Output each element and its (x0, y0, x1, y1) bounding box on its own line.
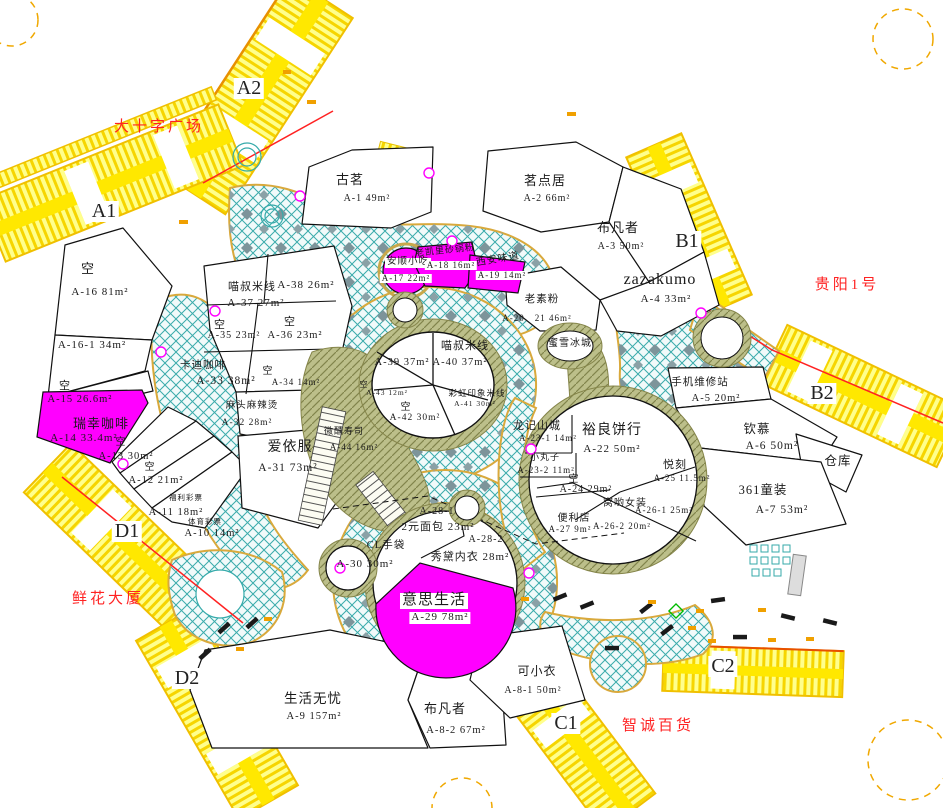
unit-name: 手机维修站 (671, 377, 729, 388)
unit-code: A-39 37m² (374, 357, 429, 368)
unit-code: A-26-2 20m² (593, 522, 651, 531)
unit-code: A-38 26m² (277, 280, 334, 292)
unit-name: 蜜雪冰城 (548, 339, 592, 350)
unit-code: A-7 53m² (756, 504, 809, 516)
unit-code: 2元面包 23m² (401, 522, 474, 534)
corridor-label-d1: D1 (112, 521, 142, 542)
unit-name: 麻头麻辣烫 (226, 402, 279, 412)
unit-name: 可小衣 (517, 665, 556, 678)
unit-name: 布凡者 (424, 702, 466, 716)
unit-code: A-36 23m² (267, 330, 322, 341)
unit-code: A-18 16m² (425, 261, 477, 270)
unit-code: A-10 14m² (184, 528, 239, 539)
unit-code: A-42 30m² (390, 414, 441, 424)
unit-name: 仓库 (824, 455, 851, 468)
unit-name: 喵叔米线 (441, 341, 489, 353)
unit-name: 生活无忧 (284, 692, 342, 706)
unit-code: A-20、21 46m² (502, 314, 571, 323)
unit-name: 裕良饼行 (582, 424, 642, 439)
unit-name: 悦刻 (663, 460, 687, 472)
corridor-label-d2: D2 (172, 668, 202, 689)
unit-name: A-16-1 34m² (58, 340, 126, 352)
unit-code: A-23-2 11m² (517, 466, 575, 475)
label-overlay: 大十字广场贵阳1号鲜花大厦智诚百货A2A1B1B2C1C2D1D2古茗A-1 4… (0, 0, 943, 808)
landmark-label: 贵阳1号 (815, 278, 880, 294)
unit-code: A-37 27m² (227, 298, 284, 310)
unit-code: A-27 9m² (549, 525, 592, 534)
unit-name: 空 (59, 381, 71, 393)
unit-name: 老素粉 (525, 294, 560, 305)
unit-code: A-13 30m² (98, 451, 153, 462)
unit-code: A-22 50m² (583, 444, 640, 456)
unit-name: 西安味道 (475, 251, 520, 269)
unit-code: A-8-2 67m² (426, 725, 486, 736)
unit-name: 空 (284, 317, 296, 329)
corridor-label-c2: C2 (708, 656, 737, 677)
unit-code: A-40 37m² (432, 357, 487, 368)
unit-name: 茗点居 (524, 174, 566, 188)
unit-name: 意思生活 (400, 593, 468, 609)
unit-code: A-5 20m² (692, 393, 741, 404)
unit-name: 便利店 (558, 514, 591, 525)
corridor-label-a2: A2 (234, 78, 264, 99)
unit-code: A-1 49m² (344, 194, 391, 205)
unit-name: 龙记山城 (513, 421, 561, 433)
corridor-label-b2: B2 (807, 383, 836, 404)
unit-code: A-25 11.5m² (654, 474, 711, 483)
unit-code: A-44 16m² (330, 443, 378, 452)
unit-code: A-31 73m² (258, 462, 317, 474)
unit-name: 361童装 (739, 484, 788, 497)
unit-name: 微醺寿司 (324, 427, 364, 436)
landmark-label: 鲜花大厦 (72, 592, 144, 608)
unit-code: A-43 12m² (366, 389, 408, 397)
unit-code: A-4 33m² (641, 294, 692, 306)
unit-name: 瑞幸咖啡 (73, 417, 129, 431)
unit-code: A-9 157m² (286, 711, 341, 722)
unit-name: 空 (145, 463, 156, 474)
unit-code: A-14 33.4m² (50, 433, 117, 445)
unit-code: A-29 78m² (409, 612, 470, 624)
unit-name: zazakumo (624, 272, 697, 289)
landmark-label: 大十字广场 (114, 120, 204, 136)
unit-name: 老凯里砂锅粉 (415, 243, 476, 259)
corridor-label-c1: C1 (551, 713, 580, 734)
unit-name: CL手袋 (367, 540, 405, 551)
unit-name: 空 (81, 262, 95, 276)
unit-code: A-33 38m² (196, 375, 255, 387)
mall-floor-plan: 大十字广场贵阳1号鲜花大厦智诚百货A2A1B1B2C1C2D1D2古茗A-1 4… (0, 0, 943, 808)
corridor-label-b1: B1 (672, 231, 701, 252)
unit-name: 彩虹印象米线 (448, 389, 505, 398)
unit-name: 古茗 (336, 173, 364, 187)
unit-code: 秀黛内衣 28m² (431, 552, 510, 564)
unit-name: 空 (263, 367, 274, 378)
unit-code: A-12 21m² (128, 475, 183, 486)
unit-name: 小丸子 (530, 453, 560, 462)
landmark-label: 智诚百货 (622, 719, 694, 735)
unit-code: A-3 50m² (598, 242, 645, 253)
unit-name: A-28-2 (469, 535, 504, 546)
unit-code: A-26-1 25m² (635, 506, 693, 515)
unit-code: A-6 50m² (746, 440, 799, 452)
unit-code: A-2 66m² (524, 194, 571, 205)
unit-name: 空 (401, 403, 412, 414)
unit-code: A-24 29m² (560, 485, 613, 496)
unit-name: 体育彩票 (188, 518, 222, 526)
unit-code: A-35 23m² (208, 331, 261, 342)
unit-code: A-17 22m² (380, 274, 432, 283)
unit-code: A-41 30m² (454, 400, 496, 408)
unit-code: A-30 30m² (336, 559, 393, 571)
unit-name: 布凡者 (597, 221, 639, 235)
unit-code: A-23-1 14m² (519, 434, 577, 443)
unit-name: 空 (116, 438, 127, 449)
unit-name: 喵叔米线 (228, 282, 276, 294)
unit-name: A-28-1 (420, 507, 455, 518)
unit-code: A-8-1 50m² (504, 686, 561, 697)
unit-code: A-16 81m² (71, 287, 128, 299)
unit-name: 福利彩票 (169, 494, 203, 502)
unit-code: A-15 26.6m² (48, 394, 113, 405)
unit-code: A-32 28m² (222, 419, 273, 429)
unit-code: A-34 14m² (272, 378, 320, 387)
unit-code: A-19 14m² (476, 271, 528, 280)
corridor-label-a1: A1 (89, 201, 119, 222)
unit-name: 卡迪咖啡 (180, 360, 226, 371)
unit-name: 钦慕 (743, 423, 770, 436)
unit-name: 爱依服 (268, 441, 313, 456)
